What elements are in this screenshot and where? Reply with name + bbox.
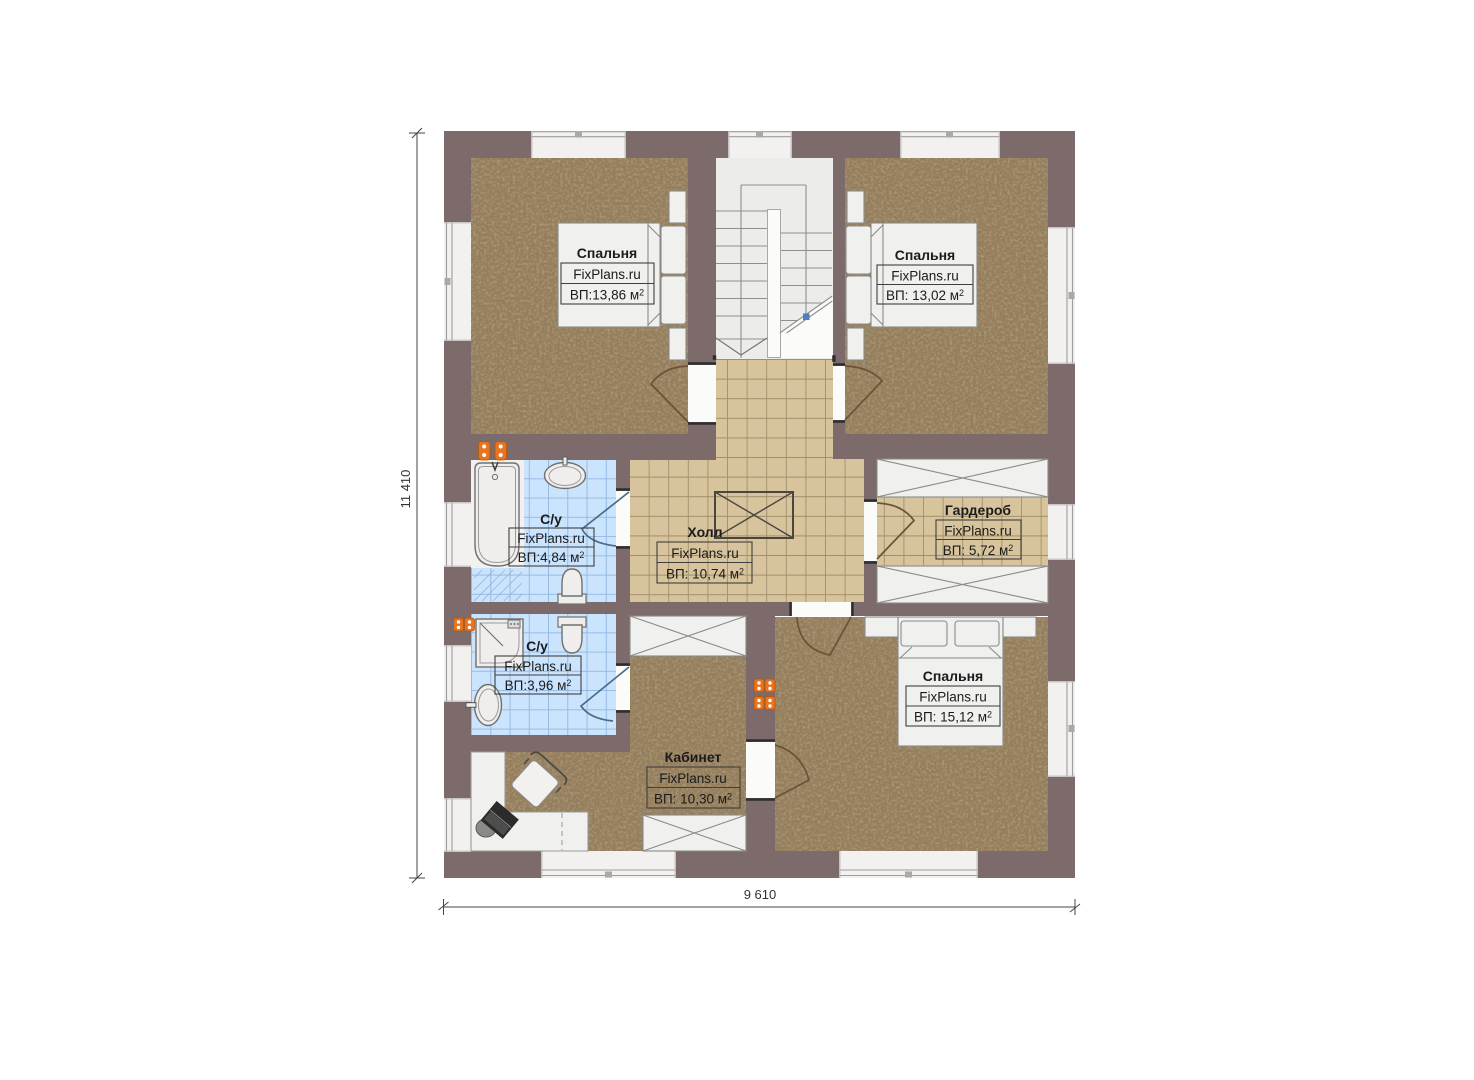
svg-text:ВП: 13,02 м2: ВП: 13,02 м2 xyxy=(886,288,964,303)
svg-text:ВП:3,96 м2: ВП:3,96 м2 xyxy=(505,678,572,693)
svg-text:FixPlans.ru: FixPlans.ru xyxy=(919,690,987,705)
svg-text:FixPlans.ru: FixPlans.ru xyxy=(517,531,585,546)
svg-text:ВП: 15,12 м2: ВП: 15,12 м2 xyxy=(914,710,992,725)
svg-text:FixPlans.ru: FixPlans.ru xyxy=(659,771,727,786)
svg-text:Спальня: Спальня xyxy=(923,668,983,684)
svg-text:Гардероб: Гардероб xyxy=(945,502,1012,518)
svg-text:Спальня: Спальня xyxy=(577,245,637,261)
svg-text:ВП: 5,72 м2: ВП: 5,72 м2 xyxy=(943,543,1014,558)
svg-text:С/у: С/у xyxy=(540,511,562,527)
svg-text:С/у: С/у xyxy=(526,638,548,654)
svg-text:11 410: 11 410 xyxy=(398,470,413,509)
svg-text:9 610: 9 610 xyxy=(744,887,777,902)
svg-text:Кабинет: Кабинет xyxy=(665,749,722,765)
svg-text:FixPlans.ru: FixPlans.ru xyxy=(671,546,739,561)
svg-text:ВП: 10,30 м2: ВП: 10,30 м2 xyxy=(654,792,732,807)
svg-text:ВП: 10,74 м2: ВП: 10,74 м2 xyxy=(666,567,744,582)
svg-text:ВП:13,86 м2: ВП:13,86 м2 xyxy=(570,288,644,303)
svg-text:FixPlans.ru: FixPlans.ru xyxy=(891,269,959,284)
svg-text:Холл: Холл xyxy=(687,524,722,540)
svg-text:Спальня: Спальня xyxy=(895,247,955,263)
svg-text:FixPlans.ru: FixPlans.ru xyxy=(573,267,641,282)
svg-text:FixPlans.ru: FixPlans.ru xyxy=(504,659,572,674)
svg-text:FixPlans.ru: FixPlans.ru xyxy=(944,524,1012,539)
svg-text:ВП:4,84 м2: ВП:4,84 м2 xyxy=(518,550,585,565)
